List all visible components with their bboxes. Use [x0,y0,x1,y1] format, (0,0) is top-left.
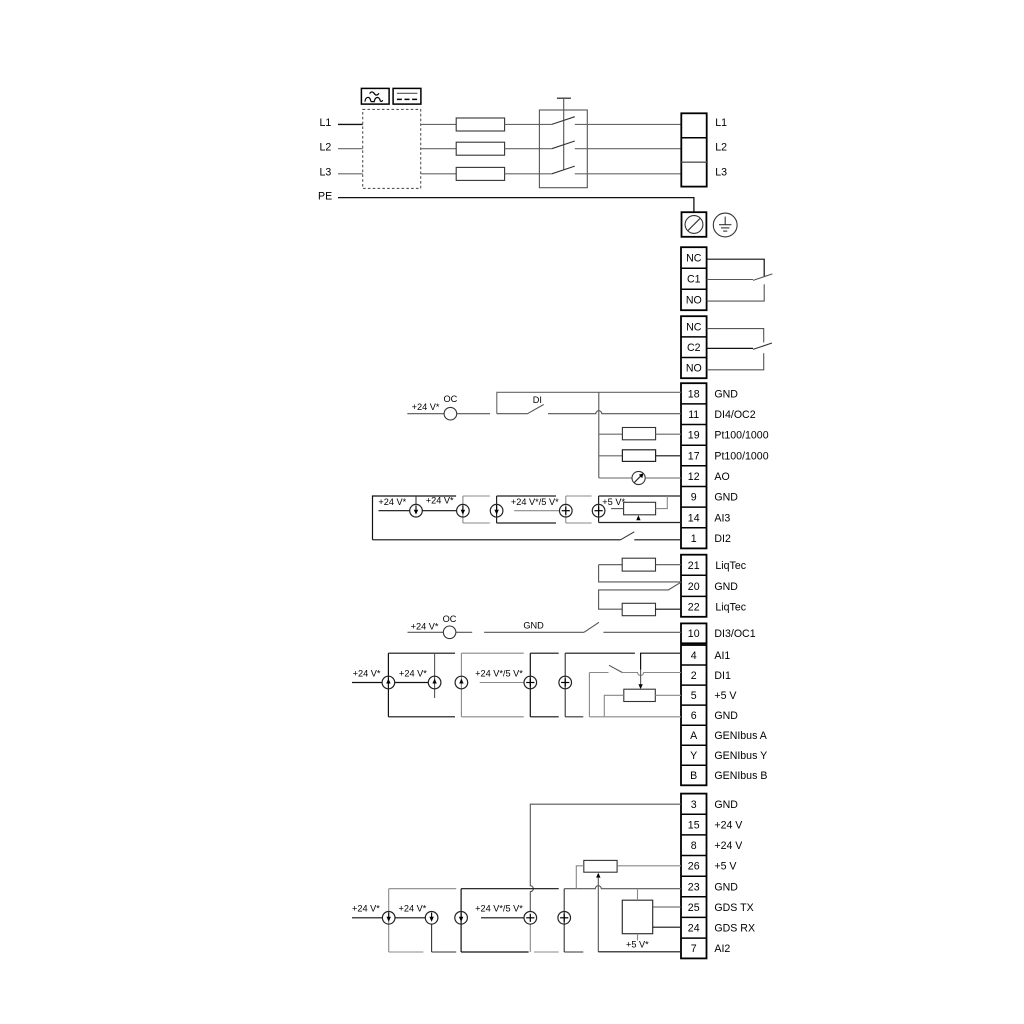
svg-text:GND: GND [523,621,544,631]
svg-text:21: 21 [688,560,700,572]
svg-text:+24 V*: +24 V* [411,622,439,632]
svg-text:+24 V*: +24 V* [426,496,454,506]
svg-text:GDS TX: GDS TX [714,902,753,914]
svg-text:L1: L1 [320,117,332,129]
svg-text:Y: Y [690,750,697,762]
svg-text:3: 3 [691,799,697,811]
svg-text:C2: C2 [687,342,701,354]
svg-text:18: 18 [688,388,700,400]
svg-text:5: 5 [691,690,697,702]
svg-text:GDS RX: GDS RX [714,923,755,935]
svg-text:GND: GND [714,881,738,893]
svg-text:A: A [690,730,698,742]
svg-text:24: 24 [688,923,700,935]
svg-text:7: 7 [691,943,697,955]
svg-text:+24 V*: +24 V* [399,668,427,678]
svg-text:GENIbus B: GENIbus B [714,770,767,782]
svg-text:GND: GND [714,799,738,811]
svg-text:+24 V: +24 V [714,820,743,832]
svg-text:11: 11 [688,409,699,421]
svg-text:GENIbus Y: GENIbus Y [714,750,767,762]
svg-text:26: 26 [688,861,700,873]
svg-text:DI2: DI2 [714,533,731,545]
svg-text:20: 20 [688,581,700,593]
svg-text:+24 V*: +24 V* [353,668,381,678]
svg-text:OC: OC [443,614,457,624]
svg-text:NO: NO [686,295,702,307]
svg-text:Pt100/1000: Pt100/1000 [714,450,768,462]
svg-text:+24 V*: +24 V* [378,497,406,507]
svg-text:LiqTec: LiqTec [715,560,746,572]
svg-text:L2: L2 [320,142,332,154]
svg-text:+24 V*: +24 V* [352,904,380,914]
svg-text:GND: GND [714,710,738,722]
svg-text:+24 V*/5 V*: +24 V*/5 V* [511,497,559,507]
svg-text:14: 14 [688,512,700,524]
svg-text:17: 17 [688,450,700,462]
svg-text:OC: OC [444,394,458,404]
svg-text:DI4/OC2: DI4/OC2 [714,409,755,421]
svg-text:AI3: AI3 [714,512,730,524]
svg-text:L2: L2 [715,142,727,154]
svg-text:AO: AO [714,471,729,483]
svg-text:AI1: AI1 [714,650,730,662]
svg-text:Pt100/1000: Pt100/1000 [714,430,768,442]
svg-text:LiqTec: LiqTec [715,602,746,614]
svg-text:12: 12 [688,471,700,483]
svg-text:10: 10 [688,628,700,640]
svg-text:NC: NC [686,321,702,333]
svg-text:+24 V: +24 V [714,840,743,852]
svg-text:+24 V*: +24 V* [412,402,440,412]
svg-text:DI: DI [533,395,542,405]
svg-text:+5 V: +5 V [714,690,737,702]
svg-text:NO: NO [686,363,702,375]
svg-text:2: 2 [691,670,697,682]
svg-text:9: 9 [691,492,697,504]
svg-text:+5 V*: +5 V* [626,940,649,950]
svg-text:4: 4 [691,650,697,662]
svg-text:GENIbus A: GENIbus A [714,730,767,742]
svg-text:+24 V*: +24 V* [399,904,427,914]
svg-text:AI2: AI2 [714,943,730,955]
svg-text:DI1: DI1 [714,670,731,682]
svg-text:15: 15 [688,820,700,832]
svg-text:B: B [690,770,697,782]
svg-text:25: 25 [688,902,700,914]
svg-text:PE: PE [318,191,332,203]
svg-text:23: 23 [688,881,700,893]
svg-text:L3: L3 [320,167,332,179]
svg-text:+24 V*/5 V*: +24 V*/5 V* [475,668,523,678]
svg-text:+24 V*/5 V*: +24 V*/5 V* [475,904,523,914]
svg-text:GND: GND [714,581,738,593]
svg-text:L3: L3 [715,167,727,179]
svg-text:NC: NC [686,253,702,265]
svg-text:1: 1 [691,533,697,545]
svg-text:19: 19 [688,430,700,442]
svg-text:GND: GND [714,388,738,400]
svg-text:L1: L1 [715,117,727,129]
svg-text:+5 V: +5 V [714,861,737,873]
svg-text:DI3/OC1: DI3/OC1 [714,628,755,640]
svg-text:+5 V*: +5 V* [602,497,625,507]
svg-text:GND: GND [714,492,738,504]
svg-text:22: 22 [688,602,700,614]
svg-text:8: 8 [691,840,697,852]
svg-text:C1: C1 [687,274,701,286]
svg-text:6: 6 [691,710,697,722]
